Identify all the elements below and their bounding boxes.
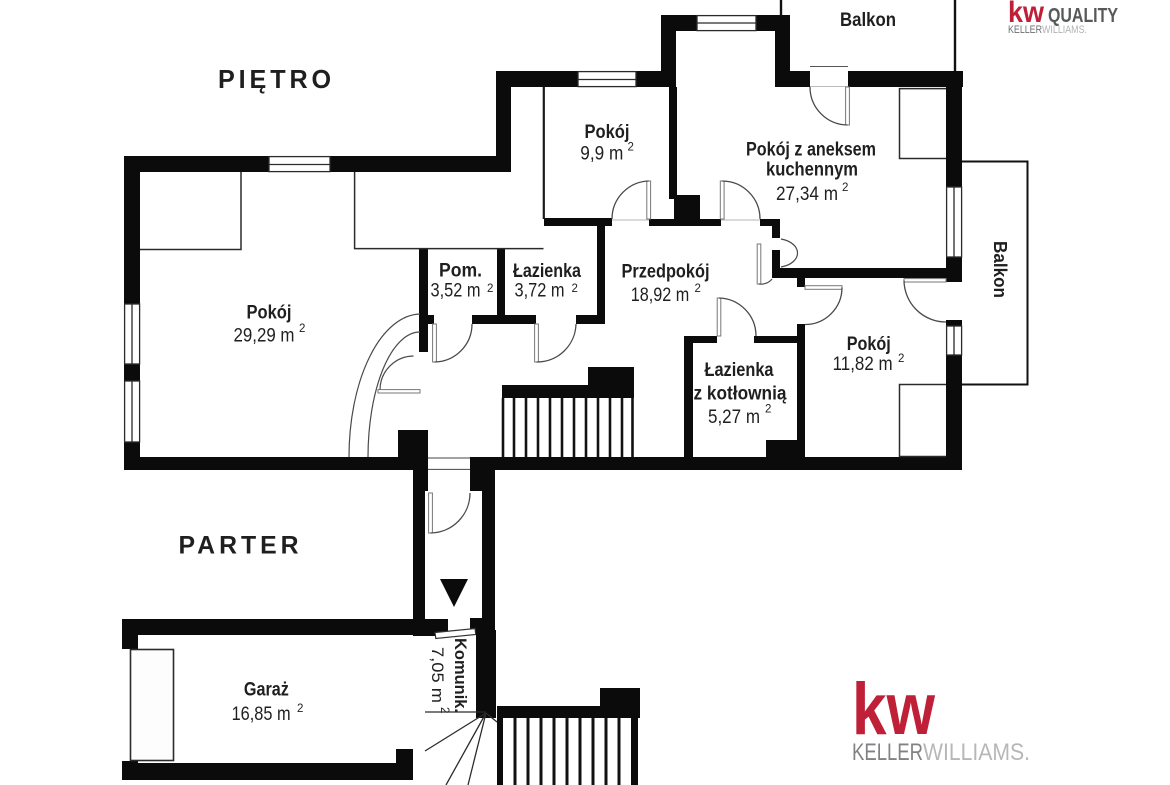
svg-text:z kotłownią: z kotłownią xyxy=(694,384,787,405)
svg-text:18,92 m: 18,92 m xyxy=(631,285,690,306)
svg-text:Pokój z aneksem: Pokój z aneksem xyxy=(746,140,876,161)
svg-text:Garaż: Garaż xyxy=(244,680,289,701)
svg-text:29,29 m: 29,29 m xyxy=(234,326,295,347)
svg-text:7,05 m: 7,05 m xyxy=(428,647,446,703)
svg-text:2: 2 xyxy=(842,182,848,194)
svg-text:Pokój: Pokój xyxy=(585,122,630,143)
svg-text:Pom.: Pom. xyxy=(439,261,482,282)
svg-text:Komunik.: Komunik. xyxy=(451,638,469,713)
svg-text:Pokój: Pokój xyxy=(247,303,292,324)
svg-text:Pokój: Pokój xyxy=(847,334,891,355)
svg-text:11,82 m: 11,82 m xyxy=(833,354,893,375)
svg-text:Łazienka: Łazienka xyxy=(705,360,774,381)
svg-text:KELLER: KELLER xyxy=(1008,24,1042,36)
svg-text:3,72 m: 3,72 m xyxy=(515,281,565,302)
svg-text:3,52 m: 3,52 m xyxy=(431,281,481,302)
svg-text:kuchennym: kuchennym xyxy=(766,160,858,181)
svg-text:PIĘTRO: PIĘTRO xyxy=(218,64,335,94)
svg-text:5,27 m: 5,27 m xyxy=(708,407,760,428)
svg-text:Balkon: Balkon xyxy=(840,10,896,31)
svg-text:2: 2 xyxy=(695,283,701,295)
svg-text:WILLIAMS.: WILLIAMS. xyxy=(1042,24,1087,36)
svg-text:2: 2 xyxy=(299,323,305,335)
svg-text:2: 2 xyxy=(572,283,578,295)
svg-text:PARTER: PARTER xyxy=(179,532,303,560)
svg-text:Przedpokój: Przedpokój xyxy=(622,262,710,283)
svg-text:27,34 m: 27,34 m xyxy=(776,184,838,205)
svg-text:2: 2 xyxy=(898,353,904,365)
svg-text:2: 2 xyxy=(628,141,634,153)
svg-text:2: 2 xyxy=(297,703,303,715)
svg-text:16,85 m: 16,85 m xyxy=(232,704,291,725)
svg-text:9,9 m: 9,9 m xyxy=(580,144,623,165)
svg-text:Balkon: Balkon xyxy=(990,241,1010,298)
svg-text:Łazienka: Łazienka xyxy=(513,261,581,282)
svg-text:KELLER: KELLER xyxy=(852,739,923,766)
svg-text:WILLIAMS.: WILLIAMS. xyxy=(923,739,1030,766)
svg-text:kw: kw xyxy=(852,669,935,750)
svg-text:2: 2 xyxy=(487,283,493,295)
svg-text:2: 2 xyxy=(765,404,771,416)
